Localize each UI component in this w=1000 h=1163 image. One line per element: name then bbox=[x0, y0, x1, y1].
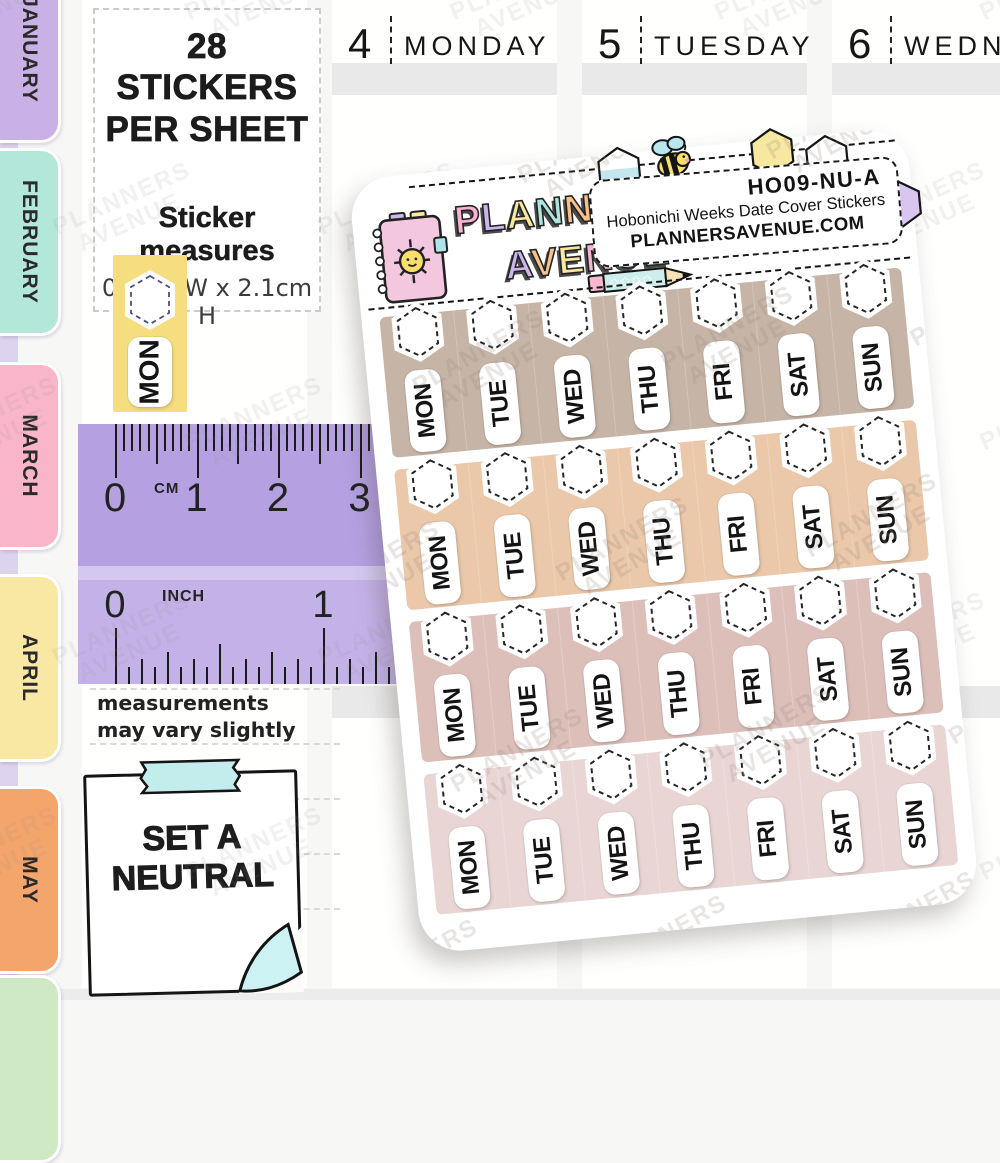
day-label-sticker: FRI bbox=[702, 339, 746, 424]
cm-tick bbox=[221, 424, 223, 451]
inch-tick bbox=[115, 628, 117, 684]
day-label-sticker: SAT bbox=[806, 637, 850, 722]
writing-line bbox=[90, 743, 340, 745]
day-label-text: FRI bbox=[752, 819, 783, 859]
cm-tick bbox=[270, 424, 272, 451]
day-label-text: MON bbox=[424, 534, 457, 591]
note-line1: SET A bbox=[87, 816, 296, 861]
sticky-note: SET A NEUTRAL bbox=[83, 769, 303, 997]
hexagon-sticker bbox=[402, 451, 464, 518]
hexagon-sticker bbox=[491, 596, 553, 663]
day-label-text: SAT bbox=[812, 656, 844, 703]
hexagon-sticker bbox=[715, 574, 777, 641]
cm-tick bbox=[148, 424, 150, 451]
ruler-divider bbox=[78, 566, 400, 580]
hexagon-sticker bbox=[775, 415, 837, 482]
inch-tick bbox=[167, 652, 169, 684]
day-label-text: THU bbox=[663, 669, 695, 719]
sticker-cell: WED bbox=[528, 296, 616, 444]
cm-tick bbox=[245, 424, 247, 451]
day-label-sticker: WED bbox=[553, 354, 597, 439]
month-tab-april: APRIL bbox=[0, 574, 61, 762]
sticker-cell: FRI bbox=[721, 739, 809, 887]
cm-tick bbox=[360, 424, 362, 478]
inch-unit-label: INCH bbox=[162, 588, 205, 606]
day-label-sticker: MON bbox=[404, 368, 448, 453]
cm-tick bbox=[164, 424, 166, 451]
inch-tick bbox=[180, 667, 182, 684]
inch-tick bbox=[154, 667, 156, 684]
hexagon-sticker bbox=[760, 263, 822, 330]
inch-tick bbox=[284, 667, 286, 684]
inch-tick bbox=[297, 659, 299, 684]
day-label-sticker: TUE bbox=[478, 361, 522, 446]
cm-tick bbox=[327, 424, 329, 451]
sticker-cell: THU bbox=[632, 594, 720, 742]
tape-shape bbox=[140, 760, 240, 793]
day-label-sticker: TUE bbox=[522, 818, 566, 903]
sticker-cell: SUN bbox=[856, 572, 944, 720]
day-label-sticker: SUN bbox=[881, 630, 925, 715]
sticker-cell: FRI bbox=[692, 434, 780, 582]
day-label-text: THU bbox=[648, 516, 680, 566]
day-label-text: SAT bbox=[783, 351, 815, 398]
inch-number: 1 bbox=[293, 584, 353, 627]
hexagon-sticker bbox=[864, 560, 926, 627]
cm-tick bbox=[229, 424, 231, 451]
month-tab-label: FEBRUARY bbox=[0, 151, 58, 333]
hexagon-sticker bbox=[580, 741, 642, 808]
hexagon-sticker bbox=[850, 408, 912, 475]
month-tab-label: MAY bbox=[0, 789, 58, 971]
day-label-text: WED bbox=[573, 520, 606, 577]
day-label-sticker: THU bbox=[642, 499, 686, 584]
day-number: 4 bbox=[348, 20, 372, 68]
note-line2: NEUTRAL bbox=[88, 855, 297, 900]
day-label-text: TUE bbox=[513, 684, 545, 733]
cm-tick bbox=[156, 424, 158, 464]
day-label-text: SUN bbox=[872, 494, 905, 546]
sticker-cell: THU bbox=[602, 289, 690, 437]
cm-tick bbox=[115, 424, 117, 478]
cm-tick bbox=[262, 424, 264, 451]
sample-sticker: MON bbox=[113, 255, 187, 412]
hexagon-sticker bbox=[476, 444, 538, 511]
inch-tick bbox=[349, 659, 351, 684]
sheet-surface: MONTUEWEDTHUFRISATSUNMONTUEWEDTHUFRISATS… bbox=[348, 126, 980, 954]
day-label-sticker: MON bbox=[418, 520, 462, 605]
header-divider bbox=[390, 16, 392, 64]
sticker-cell: SAT bbox=[796, 731, 884, 879]
cm-tick bbox=[237, 424, 239, 464]
month-tab-january: JANUARY bbox=[0, 0, 61, 143]
inch-tick bbox=[310, 667, 312, 684]
sticker-cell: SAT bbox=[752, 275, 840, 423]
hexagon-sticker bbox=[790, 567, 852, 634]
hexagon-sticker bbox=[700, 422, 762, 489]
hexagon-sticker bbox=[640, 581, 702, 648]
sticker-cell: THU bbox=[646, 746, 734, 894]
hexagon-sticker bbox=[551, 436, 613, 503]
hexagon-sticker bbox=[416, 603, 478, 670]
day-label-sticker: WED bbox=[582, 658, 626, 743]
day-label-sticker: MON bbox=[448, 825, 492, 910]
day-label-sticker: FRI bbox=[717, 492, 761, 577]
day-label-text: FRI bbox=[708, 362, 739, 402]
hexagon-sticker bbox=[536, 284, 598, 351]
day-label-sticker: THU bbox=[672, 803, 716, 888]
washi-tape-icon bbox=[131, 756, 250, 796]
month-tab-february: FEBRUARY bbox=[0, 148, 61, 336]
hexagon-sticker bbox=[686, 270, 748, 337]
day-label-sticker: SAT bbox=[821, 789, 865, 874]
sticker-cell: MON bbox=[409, 615, 496, 762]
sample-day-text: MON bbox=[134, 339, 166, 404]
month-tab-label: JANUARY bbox=[0, 0, 58, 140]
month-tab-partial bbox=[0, 975, 61, 1163]
day-label-sticker: SAT bbox=[777, 332, 821, 417]
day-label-text: SAT bbox=[827, 808, 859, 855]
day-label-text: TUE bbox=[499, 531, 531, 580]
inch-tick bbox=[323, 628, 325, 684]
hexagon-sticker bbox=[462, 291, 524, 358]
cm-tick bbox=[278, 424, 280, 478]
sample-day-label: MON bbox=[128, 337, 172, 407]
inch-tick bbox=[336, 667, 338, 684]
cm-tick bbox=[180, 424, 182, 451]
folded-corner-icon bbox=[216, 900, 304, 994]
day-label-sticker: TUE bbox=[508, 666, 552, 751]
cm-tick bbox=[335, 424, 337, 451]
month-tab-label: APRIL bbox=[0, 577, 58, 759]
day-label-text: WED bbox=[558, 368, 591, 425]
inch-tick bbox=[375, 652, 377, 684]
day-name: WEDNESDAY bbox=[904, 31, 1000, 62]
sticker-cell: FRI bbox=[677, 282, 765, 430]
day-label-sticker: FRI bbox=[746, 796, 790, 881]
inch-tick bbox=[258, 667, 260, 684]
day-number: 6 bbox=[848, 20, 872, 68]
cm-tick bbox=[172, 424, 174, 451]
inch-tick bbox=[193, 659, 195, 684]
day-label-text: THU bbox=[677, 821, 709, 871]
sticker-cell: SUN bbox=[870, 724, 958, 872]
day-label-text: MON bbox=[438, 687, 471, 744]
sticker-cell: MON bbox=[379, 311, 466, 458]
hexagon-sticker bbox=[879, 712, 941, 779]
day-label-text: MON bbox=[453, 839, 486, 896]
day-label-sticker: FRI bbox=[732, 644, 776, 729]
sticker-cell: FRI bbox=[706, 586, 794, 734]
inch-tick bbox=[141, 659, 143, 684]
hexagon-sticker bbox=[655, 734, 717, 801]
sticker-cell: TUE bbox=[468, 456, 556, 604]
sticker-cell: SAT bbox=[781, 579, 869, 727]
inch-tick bbox=[362, 667, 364, 684]
inch-number: 0 bbox=[85, 584, 145, 627]
sticker-cell: WED bbox=[542, 448, 630, 596]
inch-tick bbox=[206, 667, 208, 684]
day-label-text: FRI bbox=[723, 514, 754, 554]
disclaimer: measurements may vary slightly bbox=[97, 690, 296, 743]
hexagon-sticker bbox=[566, 589, 628, 656]
day-label-sticker: WED bbox=[597, 811, 641, 896]
day-label-text: SUN bbox=[857, 342, 890, 394]
sticker-cell: TUE bbox=[482, 608, 570, 756]
day-label-text: MON bbox=[409, 382, 442, 439]
day-label-sticker: TUE bbox=[493, 513, 537, 598]
cm-number: 2 bbox=[248, 476, 308, 521]
day-label-sticker: THU bbox=[657, 651, 701, 736]
day-name: TUESDAY bbox=[654, 31, 815, 62]
sticker-cell: MON bbox=[423, 767, 510, 914]
sticker-cell: MON bbox=[394, 463, 481, 610]
month-tab-may: MAY bbox=[0, 786, 61, 974]
day-label-sticker: SUN bbox=[866, 477, 910, 562]
hexagon-sticker bbox=[804, 719, 866, 786]
ruler: CM INCH 0123 01 bbox=[78, 424, 400, 684]
sticker-cell: WED bbox=[572, 753, 660, 901]
day-label-text: SUN bbox=[886, 646, 919, 698]
cm-number: 0 bbox=[85, 476, 145, 521]
day-label-sticker: SUN bbox=[852, 325, 896, 410]
cm-tick bbox=[139, 424, 141, 451]
sticker-cell: THU bbox=[617, 441, 705, 589]
hexagon-sticker bbox=[387, 298, 449, 365]
month-tab-label: MARCH bbox=[0, 365, 58, 547]
inch-tick bbox=[232, 667, 234, 684]
sticker-count-line1: 28 STICKERS bbox=[95, 26, 319, 109]
sticker-cell: TUE bbox=[497, 760, 585, 908]
cm-tick bbox=[205, 424, 207, 451]
day-label-text: THU bbox=[633, 364, 665, 414]
day-label-text: SUN bbox=[901, 799, 934, 851]
disclaimer-line2: may vary slightly bbox=[97, 717, 296, 744]
inch-tick bbox=[128, 667, 130, 684]
cm-tick bbox=[368, 424, 370, 451]
sticker-sheet: PLANNERS AVENUE HO09-NU-A Hobonichi Week… bbox=[348, 126, 980, 954]
header-divider bbox=[640, 16, 642, 64]
day-label-text: FRI bbox=[738, 667, 769, 707]
cm-tick bbox=[302, 424, 304, 451]
disclaimer-line1: measurements bbox=[97, 690, 296, 717]
day-label-text: WED bbox=[588, 672, 621, 729]
hexagon-sticker bbox=[431, 755, 493, 822]
cm-tick bbox=[131, 424, 133, 451]
cm-tick bbox=[294, 424, 296, 451]
cm-tick bbox=[351, 424, 353, 451]
cm-tick bbox=[311, 424, 313, 451]
cm-tick bbox=[319, 424, 321, 464]
day-label-sticker: SUN bbox=[896, 782, 940, 867]
hexagon-sticker bbox=[506, 748, 568, 815]
day-label-sticker: MON bbox=[433, 673, 477, 758]
header-divider bbox=[890, 16, 892, 64]
inch-tick bbox=[245, 659, 247, 684]
sticker-rows: MONTUEWEDTHUFRISATSUNMONTUEWEDTHUFRISATS… bbox=[379, 267, 959, 926]
hexagon-sticker bbox=[626, 429, 688, 496]
day-label-text: TUE bbox=[528, 836, 560, 885]
hexagon-sticker bbox=[730, 727, 792, 794]
hexagon-sticker bbox=[611, 277, 673, 344]
sticker-cell: SAT bbox=[766, 427, 854, 575]
sticker-cell: SUN bbox=[841, 420, 929, 568]
day-label-text: WED bbox=[602, 825, 635, 882]
day-label-sticker: SAT bbox=[792, 484, 836, 569]
sticker-cell: SUN bbox=[826, 267, 914, 415]
cm-tick bbox=[286, 424, 288, 451]
day-label-sticker: THU bbox=[628, 347, 672, 432]
day-label-sticker: WED bbox=[568, 506, 612, 591]
day-name: MONDAY bbox=[404, 31, 551, 62]
cm-tick bbox=[213, 424, 215, 451]
sticker-cell: WED bbox=[557, 601, 645, 749]
cm-tick bbox=[343, 424, 345, 451]
sticker-count-line2: PER SHEET bbox=[95, 109, 319, 150]
hexagon-sticker bbox=[835, 255, 897, 322]
cm-tick bbox=[254, 424, 256, 451]
month-tab-march: MARCH bbox=[0, 362, 61, 550]
inch-tick bbox=[271, 652, 273, 684]
cm-tick bbox=[188, 424, 190, 451]
day-label-text: TUE bbox=[484, 379, 516, 428]
day-number: 5 bbox=[598, 20, 622, 68]
inch-tick bbox=[388, 667, 390, 684]
day-label-text: SAT bbox=[797, 503, 829, 550]
cm-tick bbox=[123, 424, 125, 451]
hexagon-icon bbox=[122, 269, 178, 331]
cm-tick bbox=[197, 424, 199, 478]
sticker-cell: TUE bbox=[453, 303, 541, 451]
inch-tick bbox=[219, 644, 221, 684]
cm-number: 1 bbox=[167, 476, 227, 521]
